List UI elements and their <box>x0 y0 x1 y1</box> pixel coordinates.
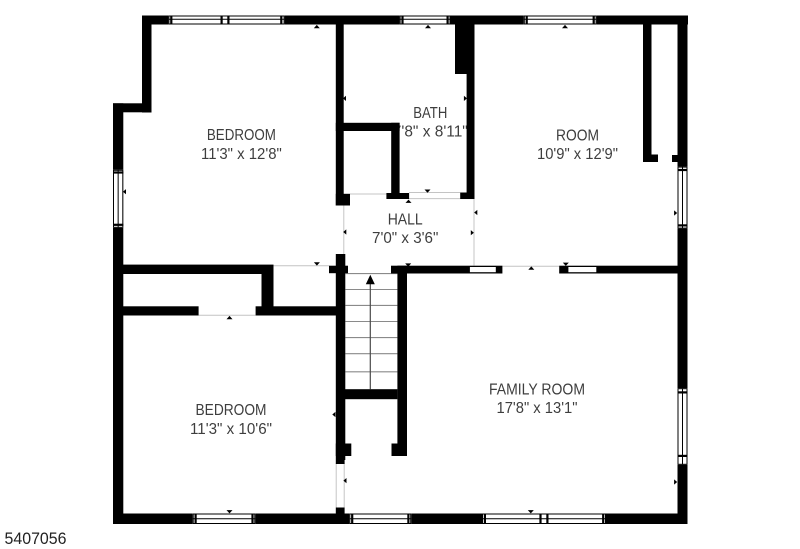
svg-text:7'8" x 8'11": 7'8" x 8'11" <box>393 124 468 141</box>
svg-text:5407056: 5407056 <box>5 530 67 548</box>
svg-text:BATH: BATH <box>413 105 447 122</box>
svg-text:11'3" x 10'6": 11'3" x 10'6" <box>190 421 272 438</box>
svg-text:ROOM: ROOM <box>556 127 599 144</box>
svg-text:BEDROOM: BEDROOM <box>196 402 267 419</box>
svg-text:BEDROOM: BEDROOM <box>207 127 276 144</box>
svg-text:17'8" x 13'1": 17'8" x 13'1" <box>497 400 578 417</box>
svg-text:FAMILY ROOM: FAMILY ROOM <box>489 381 585 398</box>
svg-text:11'3" x 12'8": 11'3" x 12'8" <box>201 146 282 163</box>
svg-text:7'0" x 3'6": 7'0" x 3'6" <box>372 230 438 247</box>
svg-text:10'9" x 12'9": 10'9" x 12'9" <box>537 146 618 163</box>
svg-text:HALL: HALL <box>388 212 423 229</box>
